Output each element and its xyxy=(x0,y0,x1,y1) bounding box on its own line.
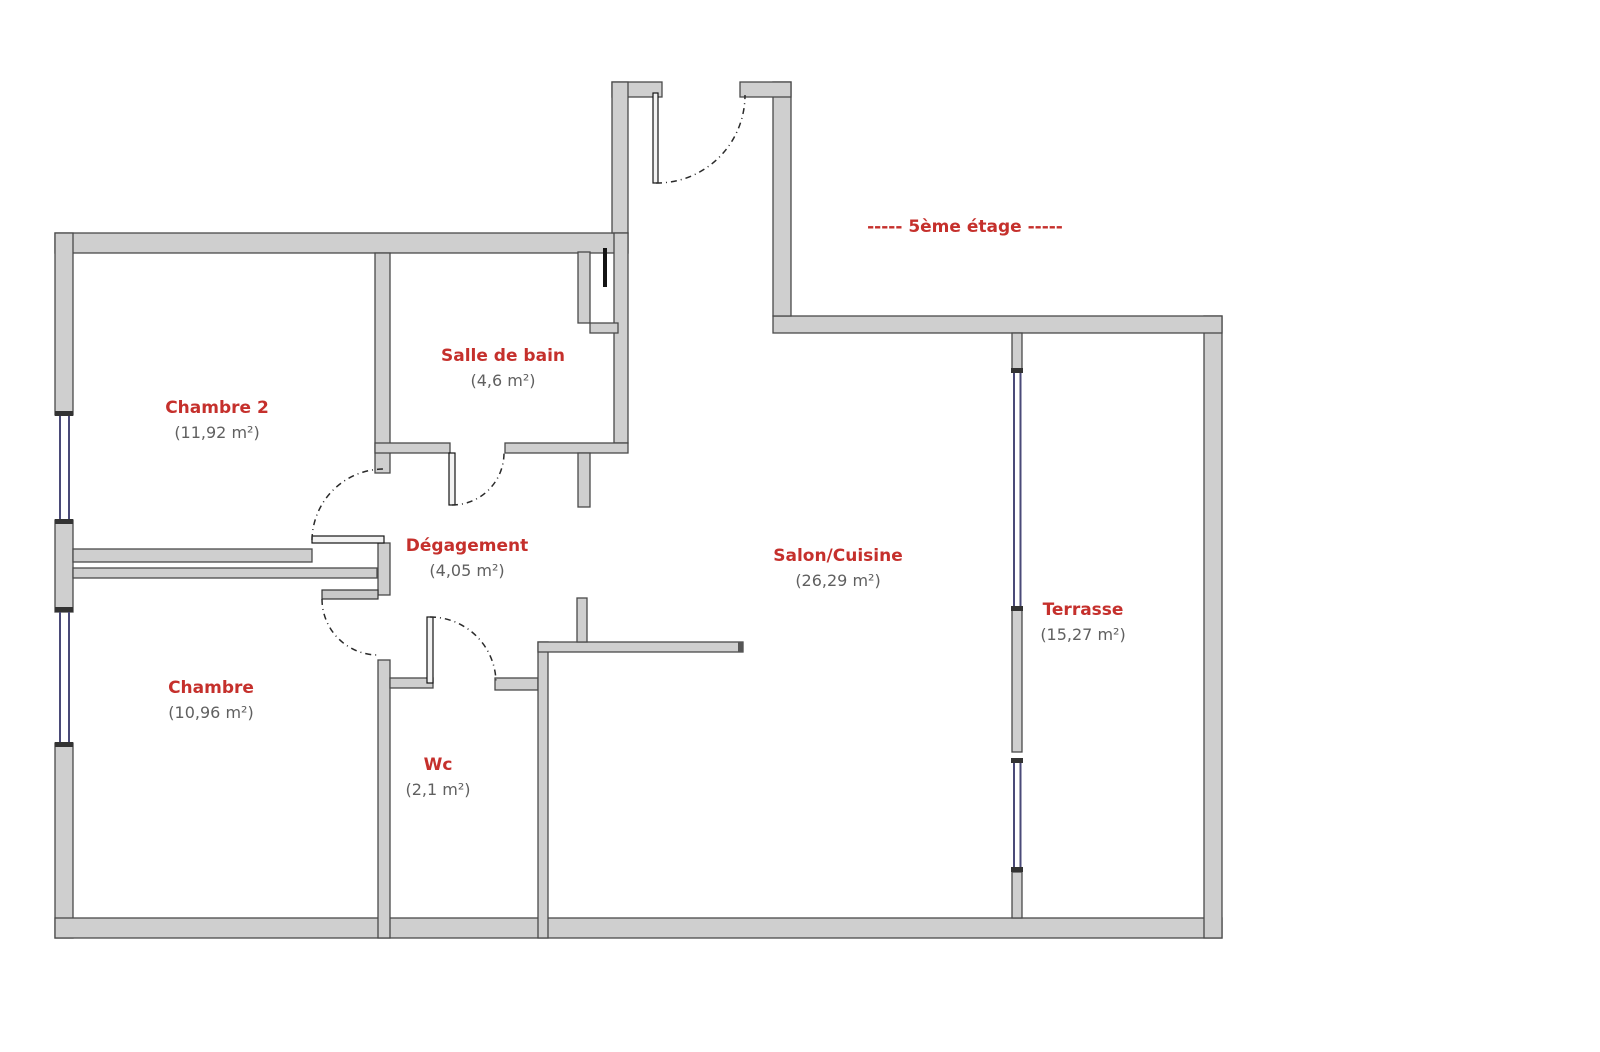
wall-hall-stub-upper xyxy=(578,453,590,507)
bedroom-door-leaf xyxy=(322,590,378,599)
wall-top-left-section xyxy=(55,233,628,253)
room-name: Dégagement xyxy=(406,537,528,557)
window-cap xyxy=(1011,758,1023,763)
wall-kitchen-partition xyxy=(538,642,743,652)
room-area: (10,96 m²) xyxy=(168,704,254,722)
room-name: Terrasse xyxy=(1040,601,1125,621)
room-name: Chambre xyxy=(168,679,254,699)
wall-between-bedrooms-upper xyxy=(73,549,312,562)
room-label-bedroom: Chambre (10,96 m²) xyxy=(168,679,254,722)
window-cap xyxy=(1011,867,1023,872)
entry-door-arc xyxy=(656,95,745,183)
room-area: (15,27 m²) xyxy=(1040,626,1125,644)
wall-outer-right xyxy=(1204,316,1222,938)
wall-bathroom-bottom-left xyxy=(375,443,450,453)
wall-kitchen-stub xyxy=(577,598,587,642)
wall-bathroom-left xyxy=(375,253,390,473)
room-area: (4,6 m²) xyxy=(441,372,565,390)
room-label-wc: Wc (2,1 m²) xyxy=(405,756,470,799)
window-cap xyxy=(55,519,73,524)
duct-door-line xyxy=(603,248,607,287)
room-name: Salle de bain xyxy=(441,347,565,367)
wc-door-leaf xyxy=(427,617,433,683)
wall-corridor-top-right xyxy=(740,82,791,97)
bedroom-door-arc xyxy=(322,599,378,655)
wall-outer-bottom xyxy=(55,918,1222,938)
room-label-bedroom2: Chambre 2 (11,92 m²) xyxy=(165,399,269,442)
wall-outer-left-lower xyxy=(55,743,73,938)
window-cap xyxy=(1011,368,1023,373)
wall-terrace-bottom xyxy=(1012,872,1022,918)
bathroom-door-leaf xyxy=(449,453,455,505)
wall-outer-left-upper xyxy=(55,233,73,415)
entry-door-leaf xyxy=(653,93,658,183)
room-name: Salon/Cuisine xyxy=(773,547,903,567)
floor-plan: ----- 5ème étage ----- Chambre 2 (11,92 … xyxy=(0,0,1600,1052)
wall-outer-left-mid xyxy=(55,520,73,612)
bedroom2-door-arc xyxy=(312,469,384,540)
bedroom2-door-leaf xyxy=(312,536,384,543)
room-label-terrace: Terrasse (15,27 m²) xyxy=(1040,601,1125,644)
floor-title: ----- 5ème étage ----- xyxy=(867,217,1063,237)
wall-corridor-right xyxy=(773,82,791,316)
room-area: (2,1 m²) xyxy=(405,781,470,799)
wall-bathroom-bottom-right xyxy=(505,443,628,453)
window-cap xyxy=(55,607,73,612)
room-label-living-kitchen: Salon/Cuisine (26,29 m²) xyxy=(773,547,903,590)
room-area: (11,92 m²) xyxy=(165,424,269,442)
wall-between-bedrooms-lower xyxy=(73,568,377,578)
wall-duct-left xyxy=(578,252,590,323)
wall-wc-top-right xyxy=(495,678,538,690)
window-cap xyxy=(1011,606,1023,611)
wall-bedrooms-divider-lower xyxy=(378,660,390,938)
window-cap xyxy=(55,411,73,416)
wc-door-arc xyxy=(430,617,496,683)
room-label-bathroom: Salle de bain (4,6 m²) xyxy=(441,347,565,390)
wall-wc-right xyxy=(538,642,548,938)
wall-corridor-left xyxy=(612,82,628,233)
room-area: (4,05 m²) xyxy=(406,562,528,580)
wall-terrace-stub-top xyxy=(1012,333,1022,372)
floor-plan-drawing xyxy=(0,0,1600,1052)
room-name: Wc xyxy=(405,756,470,776)
bathroom-door-arc xyxy=(452,453,504,505)
room-label-hallway: Dégagement (4,05 m²) xyxy=(406,537,528,580)
window-cap xyxy=(55,742,73,747)
walls xyxy=(55,82,1222,938)
wall-terrace-mid xyxy=(1012,608,1022,752)
room-area: (26,29 m²) xyxy=(773,572,903,590)
wall-bedrooms-divider-mid xyxy=(378,543,390,595)
wall-corridor-left-lower xyxy=(614,233,628,443)
wall-salon-top xyxy=(773,316,1222,333)
wall-duct-bottom xyxy=(590,323,618,333)
wall-kitchen-partition-cap xyxy=(738,642,743,652)
room-name: Chambre 2 xyxy=(165,399,269,419)
